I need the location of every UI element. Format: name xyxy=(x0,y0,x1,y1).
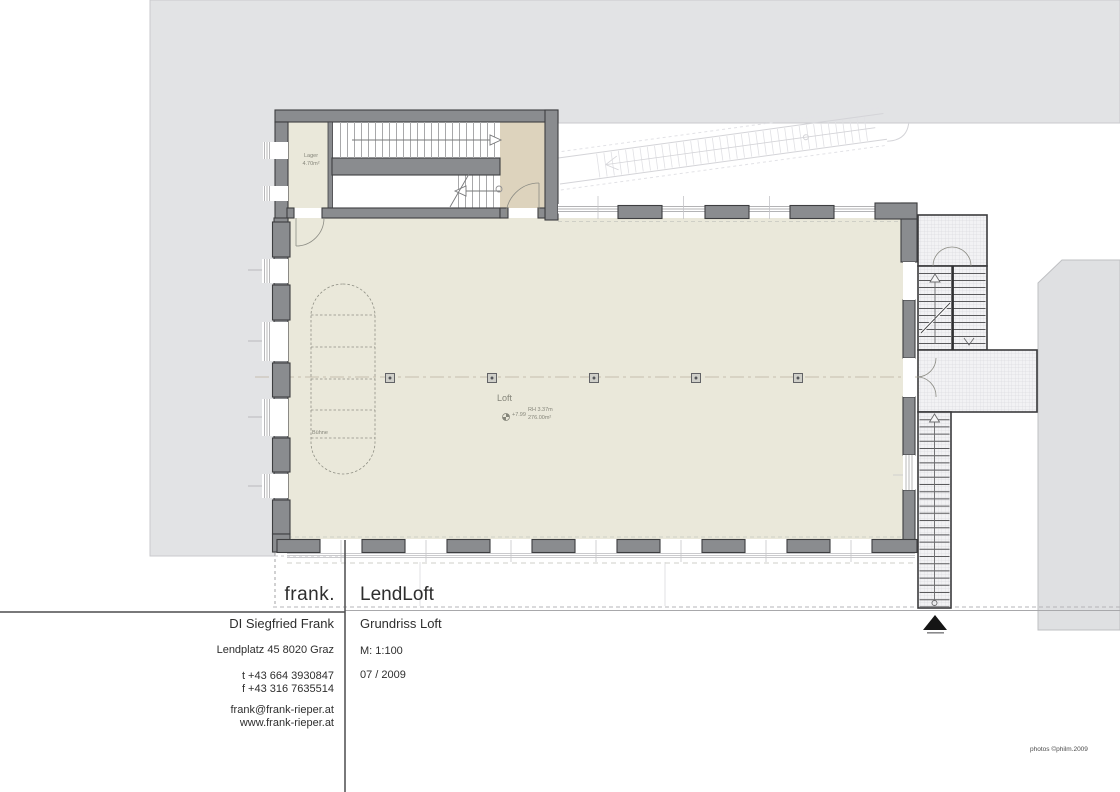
interior-floors xyxy=(287,122,903,539)
north-arrow-icon xyxy=(923,615,947,634)
drawing-date: 07 / 2009 xyxy=(360,669,406,682)
ground-lines xyxy=(0,540,1120,792)
buehne-label: Bühne xyxy=(312,430,328,436)
level-marker-icon xyxy=(503,414,510,421)
loft-level-label: +7.99 xyxy=(512,412,526,418)
architect-name: DI Siegfried Frank xyxy=(180,616,334,631)
drawing-scale: M: 1:100 xyxy=(360,645,403,658)
north-wall xyxy=(558,196,917,219)
neighbor-building xyxy=(1038,260,1120,630)
lager-room-label: Lager xyxy=(296,153,326,159)
loft-area-label: 276.00m² xyxy=(528,415,551,421)
photo-credit: photos ©philm.2009 xyxy=(1030,746,1088,753)
website-url: www.frank-rieper.at xyxy=(180,717,334,730)
external-stair-tower xyxy=(917,215,1037,608)
project-name: LendLoft xyxy=(360,584,434,606)
loft-height-label: RH 3.37m xyxy=(528,407,553,413)
lager-area-label: 4.70m² xyxy=(296,161,326,167)
drawing-sheet: Loft +7.99 RH 3.37m 276.00m² Lager 4.70m… xyxy=(0,0,1120,792)
landing-floor xyxy=(500,122,545,208)
fax-number: f +43 316 7635514 xyxy=(180,683,334,696)
phone-number: t +43 664 3930847 xyxy=(180,670,334,683)
loft-room-label: Loft xyxy=(497,393,512,403)
floor-plan-drawing xyxy=(0,0,1120,792)
drawing-title: Grundriss Loft xyxy=(360,616,442,631)
firm-logo: frank. xyxy=(220,584,335,606)
email-address: frank@frank-rieper.at xyxy=(180,704,334,717)
office-address: Lendplatz 45 8020 Graz xyxy=(180,644,334,657)
